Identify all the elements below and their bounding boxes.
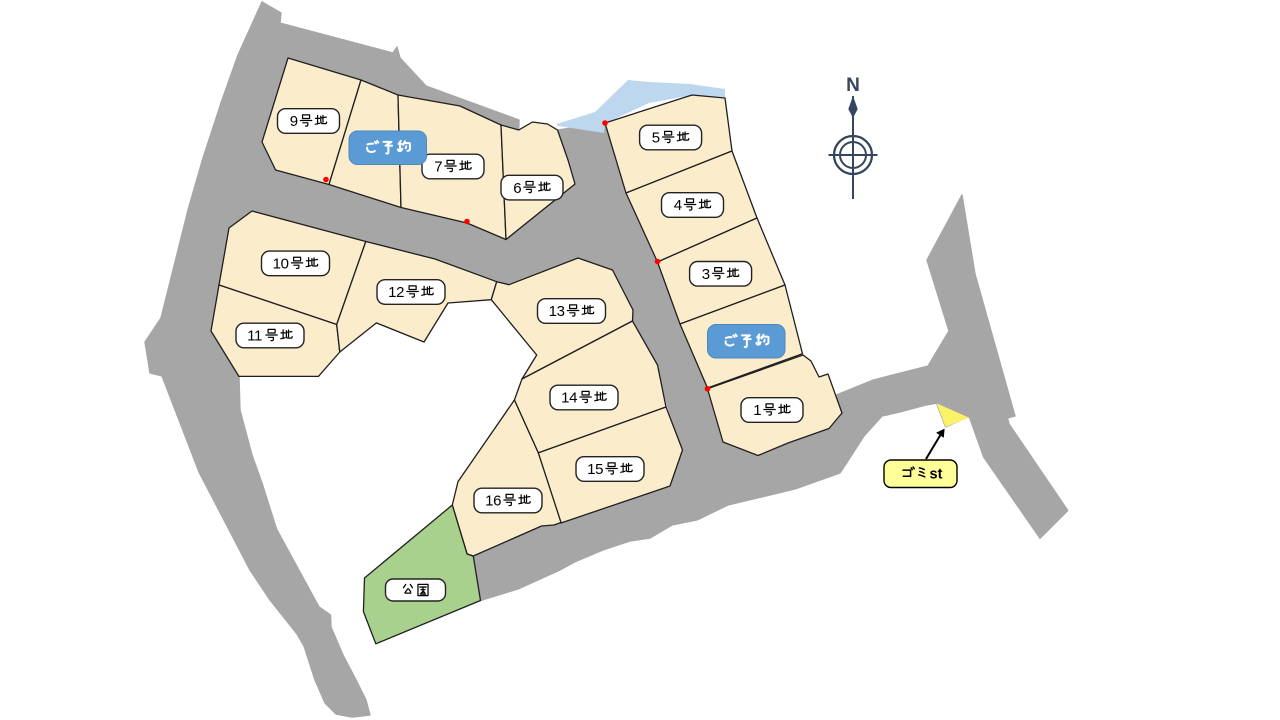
svg-text:9: 9	[290, 113, 298, 130]
svg-text:6: 6	[513, 180, 521, 197]
svg-text:7: 7	[434, 159, 442, 176]
svg-text:5: 5	[652, 130, 660, 147]
svg-text:15: 15	[587, 461, 603, 478]
svg-text:16: 16	[485, 493, 501, 510]
svg-text:4: 4	[674, 197, 682, 214]
svg-text:11: 11	[247, 328, 262, 345]
svg-text:13: 13	[549, 303, 565, 320]
svg-text:10: 10	[273, 256, 289, 273]
svg-text:3: 3	[702, 266, 710, 283]
svg-text:14: 14	[561, 390, 577, 407]
svg-text:1: 1	[753, 402, 761, 419]
svg-text:st: st	[930, 467, 943, 483]
svg-text:N: N	[846, 75, 860, 96]
svg-text:12: 12	[388, 284, 404, 301]
